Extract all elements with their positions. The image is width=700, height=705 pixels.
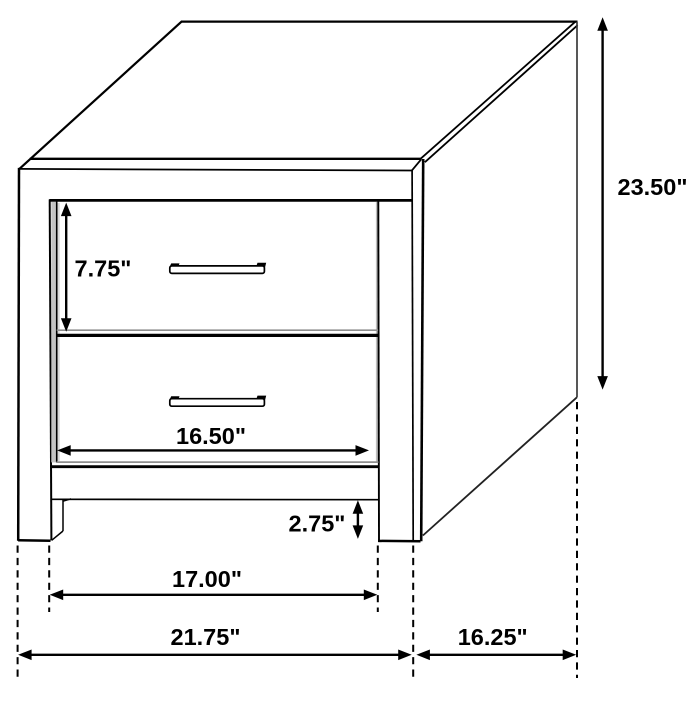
svg-text:16.25": 16.25" (458, 624, 528, 650)
svg-text:2.75": 2.75" (289, 511, 346, 537)
svg-text:7.75": 7.75" (75, 256, 132, 282)
svg-text:17.00": 17.00" (172, 566, 242, 592)
svg-text:23.50": 23.50" (618, 174, 688, 200)
svg-text:21.75": 21.75" (171, 624, 241, 650)
svg-text:16.50": 16.50" (176, 423, 246, 449)
